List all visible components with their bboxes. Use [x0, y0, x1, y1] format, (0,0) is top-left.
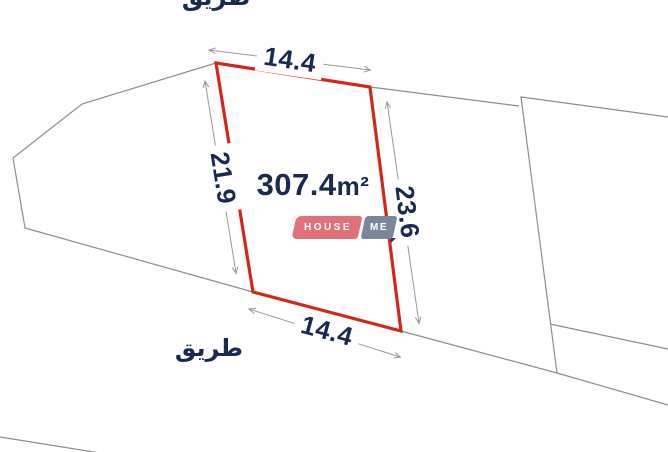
adjacent-parcel-right: [521, 97, 668, 373]
logo-house-text: HOUSE: [304, 222, 352, 233]
logo-me-text: ME: [370, 222, 388, 233]
road-edge-bottom-left: [0, 437, 100, 452]
logo-me-badge: ME: [361, 216, 398, 239]
logo-fold-triangle: [391, 238, 396, 243]
area-unit: m²: [337, 171, 370, 201]
road-label-bottom: طريق: [175, 334, 243, 362]
houseme-logo: HOUSE ME: [294, 216, 395, 239]
road-label-top: طريق: [182, 0, 250, 11]
road-edge-top-right: [370, 87, 519, 106]
plot-diagram: 14.4 21.9 23.6 14.4 307.4m² HOUSE ME طري…: [0, 0, 668, 452]
area-value: 307.4: [257, 167, 337, 202]
area-label: 307.4m²: [257, 167, 370, 203]
logo-house-badge: HOUSE: [292, 216, 363, 239]
adjacent-parcel-right-divider: [550, 324, 668, 349]
